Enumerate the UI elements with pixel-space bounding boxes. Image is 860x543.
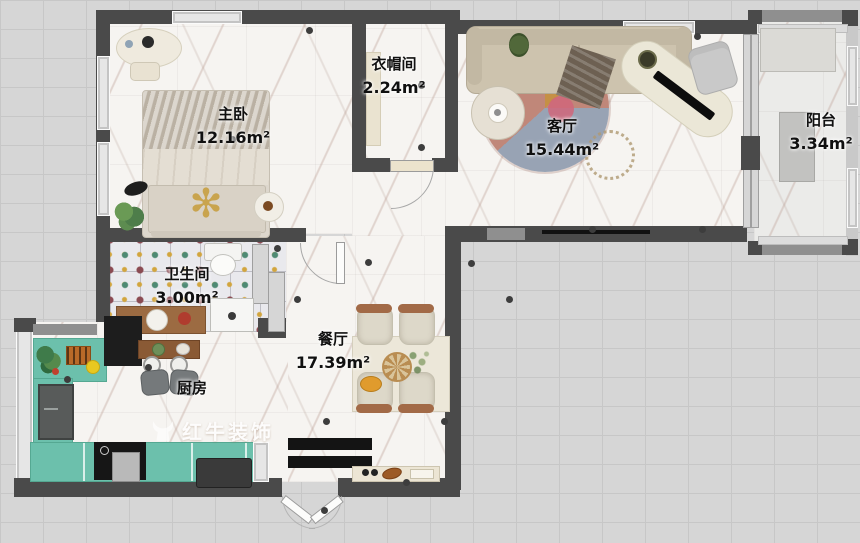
living-bottom-window xyxy=(487,228,525,240)
tomato-decor xyxy=(52,368,59,375)
floor-plan: ✻ xyxy=(0,0,860,540)
room-name: 卫生间 xyxy=(127,264,247,286)
room-area: 3.00m² xyxy=(127,286,247,309)
watermark-text: 红牛装饰 xyxy=(182,416,274,445)
shoes-black-2 xyxy=(371,469,378,476)
room-name: 主卧 xyxy=(173,104,293,126)
room-label-master-bedroom: 主卧 12.16m² xyxy=(173,104,293,149)
balcony-cabinet xyxy=(760,28,836,72)
bar-plate xyxy=(152,343,165,356)
spotlight xyxy=(323,418,330,425)
watermark: 红牛装饰 xyxy=(150,416,274,445)
room-name: 餐厅 xyxy=(273,329,393,351)
dining-chair-3-back xyxy=(356,404,392,413)
bathroom-kitchen-pass xyxy=(33,324,97,335)
bedroom-left-window-1 xyxy=(97,56,110,130)
spotlight xyxy=(468,260,475,267)
bar-dish xyxy=(176,343,190,355)
wall-top-bedroom xyxy=(96,10,460,24)
spotlight xyxy=(321,507,328,514)
balcony-right-window-glass-2 xyxy=(847,168,858,228)
dining-flowers xyxy=(404,346,434,378)
dining-dish xyxy=(360,376,382,392)
spotlight xyxy=(145,364,152,371)
lemon-decor xyxy=(86,360,100,374)
wall-cloakroom-right xyxy=(445,10,458,172)
tall-cabinet xyxy=(104,316,142,366)
room-label-dining-room: 餐厅 17.39m² xyxy=(273,329,393,374)
spotlight xyxy=(418,144,425,151)
bedroom-top-window xyxy=(172,11,242,24)
bed-fringe xyxy=(151,231,261,237)
spotlight xyxy=(294,296,301,303)
cloakroom-door-leaf xyxy=(390,160,434,172)
coffee-table-dot xyxy=(494,109,501,116)
bed-flower-decor: ✻ xyxy=(181,179,231,229)
room-area: 17.39m² xyxy=(273,351,393,374)
vanity-item xyxy=(125,40,133,48)
room-name: 阳台 xyxy=(771,110,860,132)
dining-chair-4-back xyxy=(398,404,434,413)
spotlight xyxy=(64,376,71,383)
vanity-stool xyxy=(130,62,160,81)
sofa-arm-left xyxy=(467,27,482,85)
room-label-balcony: 阳台 3.34m² xyxy=(771,110,860,155)
bathroom-cabinet-knob xyxy=(228,312,236,320)
balcony-door-pillar xyxy=(741,136,760,170)
room-area: 2.24m² xyxy=(344,76,444,99)
balcony-sill-bottom xyxy=(758,236,848,245)
spotlight xyxy=(441,418,448,425)
spotlight xyxy=(694,33,701,40)
shoe-box xyxy=(410,469,434,479)
kitchen-sink xyxy=(196,458,252,488)
bedroom-door-leaf xyxy=(336,242,345,284)
bathroom-sliding-door-panel-2 xyxy=(268,272,285,332)
bedside-table-cup xyxy=(263,201,273,211)
bedroom-plant xyxy=(112,198,146,232)
bedroom-left-window-2 xyxy=(97,142,110,216)
spotlight xyxy=(274,245,281,252)
room-name: 厨房 xyxy=(142,378,242,400)
room-label-cloakroom: 衣帽间 2.24m² xyxy=(344,54,444,99)
room-name: 衣帽间 xyxy=(344,54,444,76)
spotlight xyxy=(506,296,513,303)
room-area: 15.44m² xyxy=(504,138,620,161)
bathroom-sink xyxy=(146,309,168,331)
fridge xyxy=(38,384,74,440)
sofa-plant xyxy=(509,33,529,57)
room-area: 3.34m² xyxy=(771,132,860,155)
stove-knob xyxy=(100,446,109,455)
desk-cup xyxy=(638,50,657,69)
dining-chair-2-back xyxy=(398,304,434,313)
room-label-kitchen: 厨房 xyxy=(142,378,242,400)
spotlight xyxy=(403,479,410,486)
dining-chair-1-back xyxy=(356,304,392,313)
room-name: 客厅 xyxy=(504,116,620,138)
spotlight xyxy=(365,259,372,266)
bathroom-sink-dish xyxy=(178,312,191,325)
stove-vent xyxy=(112,452,140,482)
spotlight xyxy=(699,226,706,233)
balcony-corner-tl xyxy=(748,10,762,24)
dining-chair-2 xyxy=(399,306,435,345)
room-label-bathroom: 卫生间 3.00m² xyxy=(127,264,247,309)
balcony-sliding-door-track-2 xyxy=(751,34,759,228)
tv xyxy=(542,230,650,234)
fridge-handle xyxy=(44,408,58,410)
wall-bathroom-left xyxy=(96,242,110,322)
entry-mat-1 xyxy=(288,438,372,450)
balcony-sliding-door-track-1 xyxy=(743,34,751,228)
bull-logo-icon xyxy=(150,418,176,444)
room-area: 12.16m² xyxy=(173,126,293,149)
shoes-black-1 xyxy=(362,469,369,476)
spotlight xyxy=(306,27,313,34)
bathroom-sliding-door-panel-1 xyxy=(252,244,269,304)
kitchen-pass-window xyxy=(253,442,269,482)
spotlight xyxy=(589,226,596,233)
room-label-living-room: 客厅 15.44m² xyxy=(504,116,620,161)
balcony-right-window-glass-1 xyxy=(847,46,858,106)
vanity-mirror-item xyxy=(142,36,154,48)
